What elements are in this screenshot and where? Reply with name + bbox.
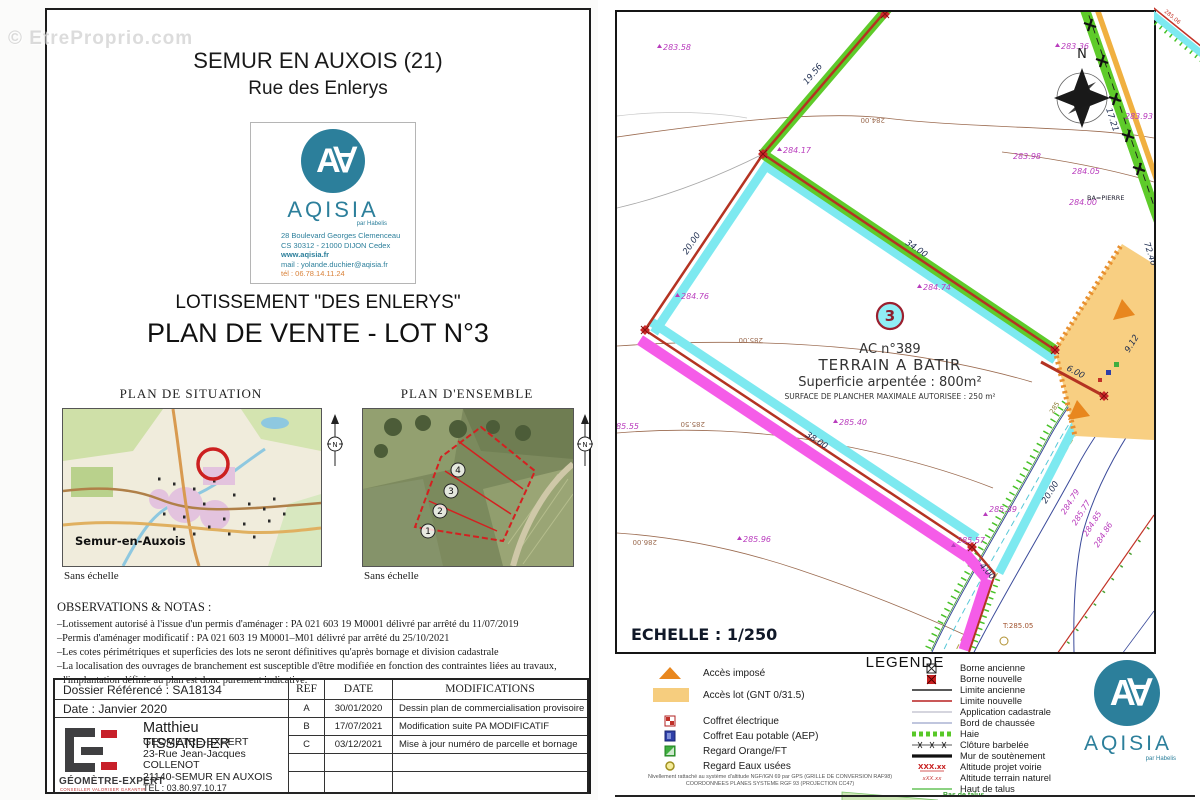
legend-item-limite-nouvelle: Limite nouvelle bbox=[910, 695, 1022, 706]
plan-de-vente-title: PLAN DE VENTE - LOT N°3 bbox=[47, 318, 589, 349]
ensemble-caption: Sans échelle bbox=[364, 570, 419, 582]
legend-label: Accès imposé bbox=[703, 668, 765, 679]
surveyor-contact: GEOMETRE-EXPERT 23-Rue Jean-Jacques COLL… bbox=[143, 737, 288, 792]
rev-ref-empty bbox=[289, 754, 325, 772]
svg-text:20.00: 20.00 bbox=[681, 231, 703, 257]
faint-line bbox=[617, 112, 747, 118]
observation-line: –Permis d'aménager modificatif : PA 021 … bbox=[57, 632, 589, 646]
legend-label: Coffret électrique bbox=[703, 716, 779, 727]
legend-item-limite-ancienne: Limite ancienne bbox=[910, 684, 1025, 695]
legend-label: Altitude terrain naturel bbox=[960, 773, 1051, 783]
aqisia-tel: tél : 06.78.14.11.24 bbox=[281, 269, 400, 279]
surveyor-addr1: 23-Rue Jean-Jacques COLLENOT bbox=[143, 749, 288, 772]
rev-ref: B bbox=[289, 718, 325, 736]
legend-item-regard-orange-ft: Regard Orange/FT bbox=[645, 744, 787, 758]
coffret-electrique-icon bbox=[1098, 378, 1102, 382]
geodesy-note-line2: COORDONNEES PLANES SYSTEME RGF 93 (PROJE… bbox=[625, 781, 915, 788]
cadastral-plan: 19.56 20.00 34.00 38.00 4.00 6.00 9.12 7… bbox=[617, 12, 1154, 652]
svg-text:285.55: 285.55 bbox=[617, 422, 639, 431]
svg-text:Superficie arpentée : 800m²: Superficie arpentée : 800m² bbox=[798, 375, 981, 390]
north-letter: N bbox=[1077, 47, 1087, 62]
parcel-info: AC n°389 TERRAIN A BATIR Superficie arpe… bbox=[784, 342, 995, 401]
svg-text:1: 1 bbox=[425, 527, 431, 537]
situation-caption: Sans échelle bbox=[64, 570, 119, 582]
observation-line: –Lotissement autorisé à l'issue d'un per… bbox=[57, 618, 589, 632]
commune-title: SEMUR EN AUXOIS (21) bbox=[47, 48, 589, 74]
svg-text:TERRAIN A BATIR: TERRAIN A BATIR bbox=[818, 356, 962, 374]
legend-item-borne-ancienne: Borne ancienne bbox=[910, 662, 1025, 673]
aqisia-monogram-icon: A∀ bbox=[301, 129, 365, 193]
surveyor-title: GEOMETRE-EXPERT bbox=[143, 737, 288, 749]
svg-text:285.57: 285.57 bbox=[957, 536, 986, 545]
watermark: © EtreProprio.com bbox=[8, 28, 193, 50]
title-page: SEMUR EN AUXOIS (21) Rue des Enlerys A∀ … bbox=[45, 8, 591, 794]
geometre-expert-logo-icon bbox=[65, 728, 125, 776]
svg-text:xXX.xx: xXX.xx bbox=[921, 776, 942, 782]
legend-label: Limite nouvelle bbox=[960, 696, 1022, 706]
rev-date: 30/01/2020 bbox=[325, 700, 393, 718]
aqisia-address: 28 Boulevard Georges Clemenceau CS 30312… bbox=[281, 231, 400, 279]
legend-label: Application cadastrale bbox=[960, 707, 1051, 717]
aqisia-logo-block: A∀ AQISIA par Habelis 28 Boulevard Georg… bbox=[250, 122, 416, 284]
svg-text:2: 2 bbox=[437, 507, 443, 517]
bas-de-talus-wedge-icon bbox=[840, 788, 940, 800]
legend-label: Clôture barbelée bbox=[960, 740, 1029, 750]
legend-label: Haie bbox=[960, 729, 979, 739]
svg-text:286.00: 286.00 bbox=[633, 538, 658, 546]
svg-text:284.00: 284.00 bbox=[861, 116, 886, 124]
rev-desc: Mise à jour numéro de parcelle et bornag… bbox=[393, 736, 587, 754]
svg-text:283.58: 283.58 bbox=[663, 43, 691, 52]
col-header-date: DATE bbox=[325, 680, 393, 700]
surveyor-tel: TEL : 03.80.97.10.17 bbox=[143, 783, 288, 792]
situation-map-art: Semur-en-Auxois bbox=[63, 409, 321, 566]
legend-item-acces-lot: Accès lot (GNT 0/31.5) bbox=[645, 688, 805, 702]
observations-title: OBSERVATIONS & NOTAS : bbox=[57, 600, 211, 615]
lotissement-title: LOTISSEMENT "DES ENLERYS" bbox=[47, 292, 589, 314]
rev-desc: Modification suite PA MODIFICATIF bbox=[393, 718, 587, 736]
legend-item-borne-nouvelle: Borne nouvelle bbox=[910, 673, 1022, 684]
north-arrow-icon: N bbox=[327, 414, 343, 470]
situation-map: Semur-en-Auxois bbox=[62, 408, 322, 567]
svg-text:285.00: 285.00 bbox=[739, 336, 764, 344]
acces-lot-icon bbox=[645, 686, 695, 704]
svg-text:SURFACE DE PLANCHER MAXIMALE A: SURFACE DE PLANCHER MAXIMALE AUTORISEE :… bbox=[784, 392, 995, 401]
legend-item-bord-de-chaussee: Bord de chaussée bbox=[910, 717, 1035, 728]
ensemble-map-art: 4 3 2 1 bbox=[363, 409, 573, 566]
legend-label: Altitude projet voirie bbox=[960, 762, 1042, 772]
surveyor-addr2: 21140-SEMUR EN AUXOIS bbox=[143, 772, 288, 784]
haie-band bbox=[763, 12, 1055, 350]
rev-date-empty bbox=[325, 754, 393, 772]
lot3-label: 3 bbox=[877, 303, 903, 329]
street-title: Rue des Enlerys bbox=[47, 78, 589, 100]
svg-text:283.98: 283.98 bbox=[1013, 152, 1041, 161]
surveyor-block: GÉOMÈTRE-EXPERT CONSEILLER VALORISER GAR… bbox=[55, 718, 289, 792]
geometre-expert-slogan: CONSEILLER VALORISER GARANTIR bbox=[60, 787, 146, 792]
title-block-table: Dossier Référencé : SA18134 Date : Janvi… bbox=[53, 678, 589, 794]
manhole-icon bbox=[1000, 637, 1008, 645]
scanned-plan-document: © EtreProprio.com SEMUR EN AUXOIS (21) R… bbox=[0, 0, 1200, 800]
rev-desc-empty bbox=[393, 772, 587, 792]
situation-map-title: PLAN DE SITUATION bbox=[62, 386, 320, 402]
legend-label: Accès lot (GNT 0/31.5) bbox=[703, 690, 805, 701]
legend-label: Coffret Eau potable (AEP) bbox=[703, 731, 818, 742]
dossier-reference: Dossier Référencé : SA18134 bbox=[55, 680, 289, 700]
legend-item-application-cadastrale: Application cadastrale bbox=[910, 706, 1051, 717]
coffret-eau-icon bbox=[1106, 370, 1111, 375]
svg-text:285.39: 285.39 bbox=[989, 505, 1017, 514]
plan-page: 19.56 20.00 34.00 38.00 4.00 6.00 9.12 7… bbox=[598, 0, 1200, 800]
rev-desc: Dessin plan de commercialisation proviso… bbox=[393, 700, 587, 718]
legend-label: Borne ancienne bbox=[960, 663, 1025, 673]
legend-label: Borne nouvelle bbox=[960, 674, 1022, 684]
legend-item-cloture-barbelee: Clôture barbelée bbox=[910, 739, 1029, 750]
observation-line: –Les cotes périmétriques et superficies … bbox=[57, 646, 589, 660]
svg-text:XXX.xx: XXX.xx bbox=[918, 763, 946, 771]
scale-label: ECHELLE : 1/250 bbox=[631, 625, 777, 644]
observation-line: –La localisation des ouvrages de branche… bbox=[57, 660, 589, 674]
aqisia-monogram-icon: A∀ bbox=[1094, 660, 1160, 726]
aqisia-logo-small: A∀ AQISIA par Habelis bbox=[1066, 656, 1190, 794]
rev-ref: C bbox=[289, 736, 325, 754]
legend-item-altitude-terrain: xXX.xx Altitude terrain naturel bbox=[910, 772, 1051, 783]
aqisia-address2: CS 30312 - 21000 DIJON Cedex bbox=[281, 241, 400, 251]
svg-text:4: 4 bbox=[455, 466, 461, 476]
regard-ft-icon bbox=[1114, 362, 1119, 367]
plan-frame: 19.56 20.00 34.00 38.00 4.00 6.00 9.12 7… bbox=[615, 10, 1156, 654]
t-285-label: T:285.05 bbox=[1002, 622, 1033, 630]
geodesy-note: Nivellement rattaché au système d'altitu… bbox=[625, 774, 915, 788]
rev-date: 17/07/2021 bbox=[325, 718, 393, 736]
rev-ref-empty bbox=[289, 772, 325, 792]
aqisia-name: AQISIA bbox=[1066, 732, 1190, 756]
svg-text:N: N bbox=[582, 441, 587, 449]
aqisia-byline: par Habelis bbox=[1146, 756, 1176, 762]
aqisia-name: AQISIA bbox=[251, 197, 415, 223]
acces-impose-icon bbox=[645, 665, 695, 681]
svg-text:284.17: 284.17 bbox=[783, 146, 812, 155]
svg-text:285.40: 285.40 bbox=[839, 418, 867, 427]
legend-label: Bord de chaussée bbox=[960, 718, 1035, 728]
svg-text:284.74: 284.74 bbox=[923, 283, 951, 292]
aqisia-mail: mail : yolande.duchier@aqisia.fr bbox=[281, 260, 400, 270]
rev-ref: A bbox=[289, 700, 325, 718]
geodesy-note-line1: Nivellement rattaché au système d'altitu… bbox=[625, 774, 915, 781]
svg-text:3: 3 bbox=[885, 307, 895, 325]
city-label: Semur-en-Auxois bbox=[75, 534, 186, 548]
rev-date: 03/12/2021 bbox=[325, 736, 393, 754]
svg-text:284.05: 284.05 bbox=[1072, 167, 1100, 176]
svg-text:285.50: 285.50 bbox=[681, 420, 706, 428]
ensemble-map-title: PLAN D'ENSEMBLE bbox=[362, 386, 572, 402]
coffret-electrique-icon bbox=[645, 715, 695, 727]
north-arrow-icon: N bbox=[577, 414, 593, 470]
legend-item-altitude-projet: XXX.xx Altitude projet voirie bbox=[910, 761, 1042, 772]
aqisia-address1: 28 Boulevard Georges Clemenceau bbox=[281, 231, 400, 241]
svg-text:3: 3 bbox=[448, 487, 454, 497]
col-header-modifications: MODIFICATIONS bbox=[393, 680, 587, 700]
rev-date-empty bbox=[325, 772, 393, 792]
svg-text:AC n°389: AC n°389 bbox=[859, 342, 920, 357]
coffret-eau-icon bbox=[645, 730, 695, 742]
svg-text:285: 285 bbox=[1048, 400, 1061, 415]
rev-desc-empty bbox=[393, 754, 587, 772]
svg-text:283.93: 283.93 bbox=[1125, 112, 1153, 121]
ensemble-map: 4 3 2 1 bbox=[362, 408, 574, 567]
legend-item-coffret-eau: Coffret Eau potable (AEP) bbox=[645, 729, 818, 743]
legend-label: Limite ancienne bbox=[960, 685, 1025, 695]
legend-item-acces-impose: Accès imposé bbox=[645, 666, 765, 680]
legend-label: Mur de soutènement bbox=[960, 751, 1045, 761]
legend-item-coffret-electrique: Coffret électrique bbox=[645, 714, 779, 728]
legend-item-mur-de-soutenement: Mur de soutènement bbox=[910, 750, 1045, 761]
legend-label: Regard Eaux usées bbox=[703, 761, 791, 772]
svg-text:284.76: 284.76 bbox=[681, 292, 709, 301]
page-bottom-rule bbox=[615, 795, 1195, 797]
ba-pierre-label: BA=PIERRE bbox=[1087, 194, 1124, 202]
col-header-ref: REF bbox=[289, 680, 325, 700]
regard-orange-ft-icon bbox=[645, 745, 695, 757]
legend-label: Regard Orange/FT bbox=[703, 746, 787, 757]
svg-text:285.96: 285.96 bbox=[743, 535, 771, 544]
regard-eaux-usees-icon bbox=[645, 760, 695, 772]
aqisia-byline: par Habelis bbox=[357, 221, 387, 227]
svg-text:N: N bbox=[332, 441, 337, 449]
dossier-date: Date : Janvier 2020 bbox=[55, 700, 289, 718]
aqisia-web: www.aqisia.fr bbox=[281, 250, 400, 260]
legend-item-haie: Haie bbox=[910, 728, 979, 739]
corner-overflow-art: 285.06 bbox=[1154, 0, 1200, 72]
legend-item-regard-eaux-usees: Regard Eaux usées bbox=[645, 759, 791, 773]
